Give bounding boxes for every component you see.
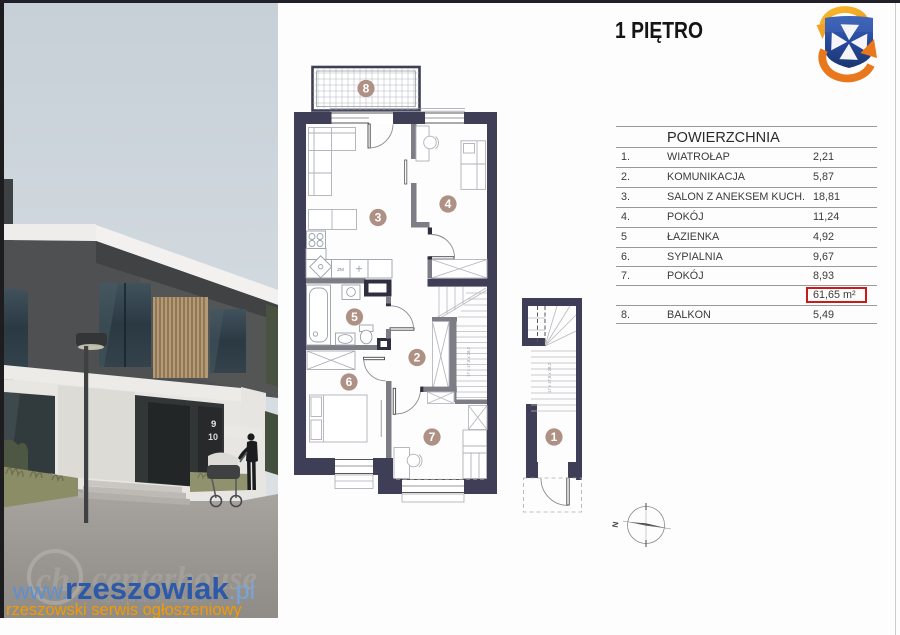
svg-text:4: 4 xyxy=(445,197,452,211)
svg-text:ZM: ZM xyxy=(337,267,344,272)
svg-text:17 x 17,8 x 28,2: 17 x 17,8 x 28,2 xyxy=(547,362,552,392)
svg-text:N: N xyxy=(611,521,621,528)
svg-text:6: 6 xyxy=(346,375,353,389)
svg-text:8: 8 xyxy=(363,82,370,96)
svg-text:7: 7 xyxy=(429,430,436,444)
svg-text:5: 5 xyxy=(351,310,358,324)
svg-text:3: 3 xyxy=(375,211,382,225)
svg-text:2: 2 xyxy=(414,351,421,365)
svg-text:17 x 17,8 x 28,2: 17 x 17,8 x 28,2 xyxy=(466,346,471,376)
svg-text:1: 1 xyxy=(551,430,558,444)
